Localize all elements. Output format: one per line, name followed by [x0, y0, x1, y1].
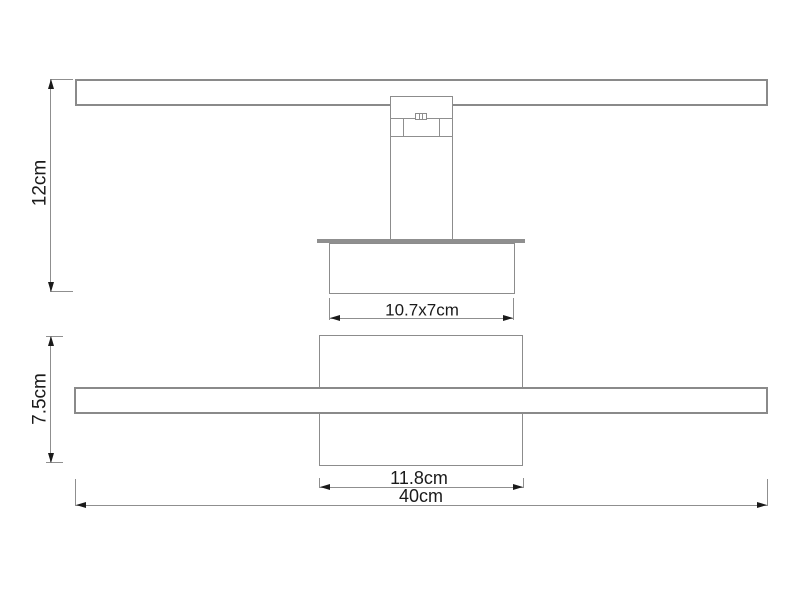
dim-7-5cm-label: 7.5cm: [31, 373, 50, 425]
dim-mount-ext-right: [513, 298, 514, 320]
front-view-lamp-bar: [74, 387, 768, 414]
cable-connector: [415, 113, 427, 120]
connector-tick-2: [422, 114, 423, 119]
mount-plate: [317, 239, 525, 243]
dim-total-ext-right: [767, 479, 768, 506]
dim-total-arrow-right: [757, 502, 767, 508]
connector-tick-1: [419, 114, 420, 119]
dim-12cm-label: 12cm: [31, 160, 50, 206]
dim-7-5cm-arrow-down: [48, 453, 54, 463]
dim-backplate-arrow-right: [513, 484, 523, 490]
dim-backplate-label: 11.8cm: [390, 469, 448, 487]
dim-12cm-arrow-up: [48, 79, 54, 89]
dim-backplate-arrow-left: [320, 484, 330, 490]
dim-7-5cm-arrow-up: [48, 336, 54, 346]
dim-12cm-arrow-down: [48, 282, 54, 292]
bracket-divider-bottom: [390, 136, 453, 137]
dim-total-label: 40cm: [399, 487, 443, 505]
bracket-inner-right-line: [439, 118, 440, 137]
dim-mount-label: 10.7x7cm: [385, 302, 459, 319]
dim-mount-arrow-left: [330, 315, 340, 321]
canopy-box-side: [329, 243, 515, 294]
dimension-diagram: 12cm 10.7x7cm 7.5cm 11.8cm 40cm: [0, 0, 800, 600]
bracket-inner-left-line: [403, 118, 404, 137]
dim-total-arrow-left: [76, 502, 86, 508]
dim-mount-arrow-right: [503, 315, 513, 321]
